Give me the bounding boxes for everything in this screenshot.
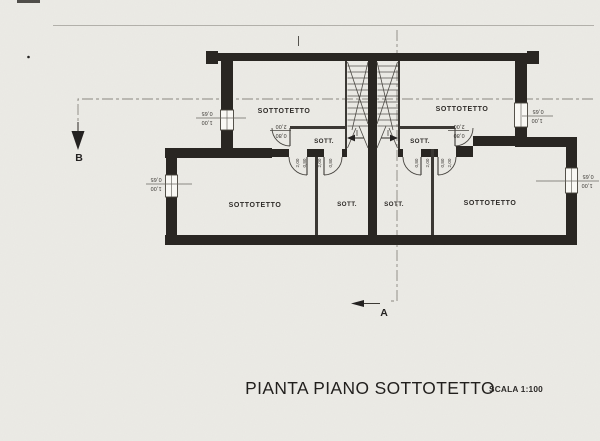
wall-lower-right-b xyxy=(566,193,577,235)
room-label-lower-left: SOTTOTETTO xyxy=(229,202,282,209)
window-sill-dim: 1,00 xyxy=(201,119,212,125)
wall-step-right xyxy=(515,137,577,147)
stairwell-wall-left xyxy=(345,61,347,149)
page-title: PIANTA PIANO SOTTOTETTO xyxy=(245,378,495,398)
door-height-dim: 2,00 xyxy=(317,158,322,167)
door-width-dim: 0,80 xyxy=(440,158,445,167)
door-width-dim: 0,80 xyxy=(328,158,333,167)
wall-upper-left-a xyxy=(221,61,233,110)
window-sill-dim: 1,00 xyxy=(150,185,161,191)
wall-upper-right-b xyxy=(515,127,527,137)
wall-landing-right xyxy=(473,136,515,146)
section-label-a: A xyxy=(380,307,388,319)
floor-plan-drawing: 0,65 1,00 0,65 1,00 0,65 1,00 0,65 1,00 … xyxy=(0,0,600,441)
door-height-dim: 2,00 xyxy=(295,158,300,167)
scale-label: SCALA 1:100 xyxy=(489,384,543,394)
hall-label-left: SOTT. xyxy=(314,138,334,145)
wall-landing-left-seg1 xyxy=(272,149,289,157)
door-height-dim: 2,00 xyxy=(447,158,452,167)
hall-wall-right xyxy=(399,126,455,129)
wall-lower-left-a xyxy=(166,158,177,175)
hall-wall-left xyxy=(290,126,346,129)
window-sill-dim: 1,00 xyxy=(531,117,542,123)
window-sill-dim: 1,00 xyxy=(581,182,592,188)
wall-landing-right-seg1 xyxy=(398,149,403,157)
section-label-b: B xyxy=(75,152,83,164)
door-width-dim: 0,80 xyxy=(453,132,464,138)
room-label-upper-right: SOTTOTETTO xyxy=(436,106,489,113)
partition-right xyxy=(431,149,434,235)
scanned-floor-plan-page: 0,65 1,00 0,65 1,00 0,65 1,00 0,65 1,00 … xyxy=(0,0,600,441)
window-width-dim: 0,65 xyxy=(582,173,593,179)
wall-top-cap-right xyxy=(527,51,539,64)
door-width-dim: 0,80 xyxy=(302,158,307,167)
wall-bottom xyxy=(165,235,577,245)
paper-background xyxy=(0,0,600,441)
room-label-lower-right: SOTTOTETTO xyxy=(464,200,517,207)
party-wall xyxy=(368,53,377,245)
small-room-label-right: SOTT. xyxy=(384,201,404,208)
wall-landing-left-seg2 xyxy=(307,149,324,157)
door-height-dim: 2,00 xyxy=(275,123,286,129)
window-width-dim: 0,65 xyxy=(532,108,543,114)
wall-landing-right-seg3 xyxy=(456,146,473,157)
room-label-upper-left: SOTTOTETTO xyxy=(258,108,311,115)
hall-label-right: SOTT. xyxy=(410,138,430,145)
wall-step-left xyxy=(165,148,272,158)
wall-lower-left-b xyxy=(166,197,177,239)
wall-lower-right-a xyxy=(566,147,577,168)
scan-speck xyxy=(27,56,30,59)
door-height-dim: 2,00 xyxy=(453,123,464,129)
wall-landing-right-seg2 xyxy=(421,149,438,157)
door-width-dim: 0,80 xyxy=(275,132,286,138)
door-width-dim: 0,80 xyxy=(414,158,419,167)
scan-smudge xyxy=(17,0,40,3)
wall-top-cap-left xyxy=(206,51,218,64)
window-width-dim: 0,65 xyxy=(201,110,212,116)
window-width-dim: 0,65 xyxy=(150,176,161,182)
stairwell-wall-right xyxy=(398,61,400,149)
partition-left xyxy=(315,157,318,235)
wall-landing-left-seg3 xyxy=(342,149,347,157)
door-height-dim: 2,00 xyxy=(425,158,430,167)
small-room-label-left: SOTT. xyxy=(337,201,357,208)
wall-upper-left-b xyxy=(221,130,233,150)
wall-upper-right-a xyxy=(515,61,527,103)
